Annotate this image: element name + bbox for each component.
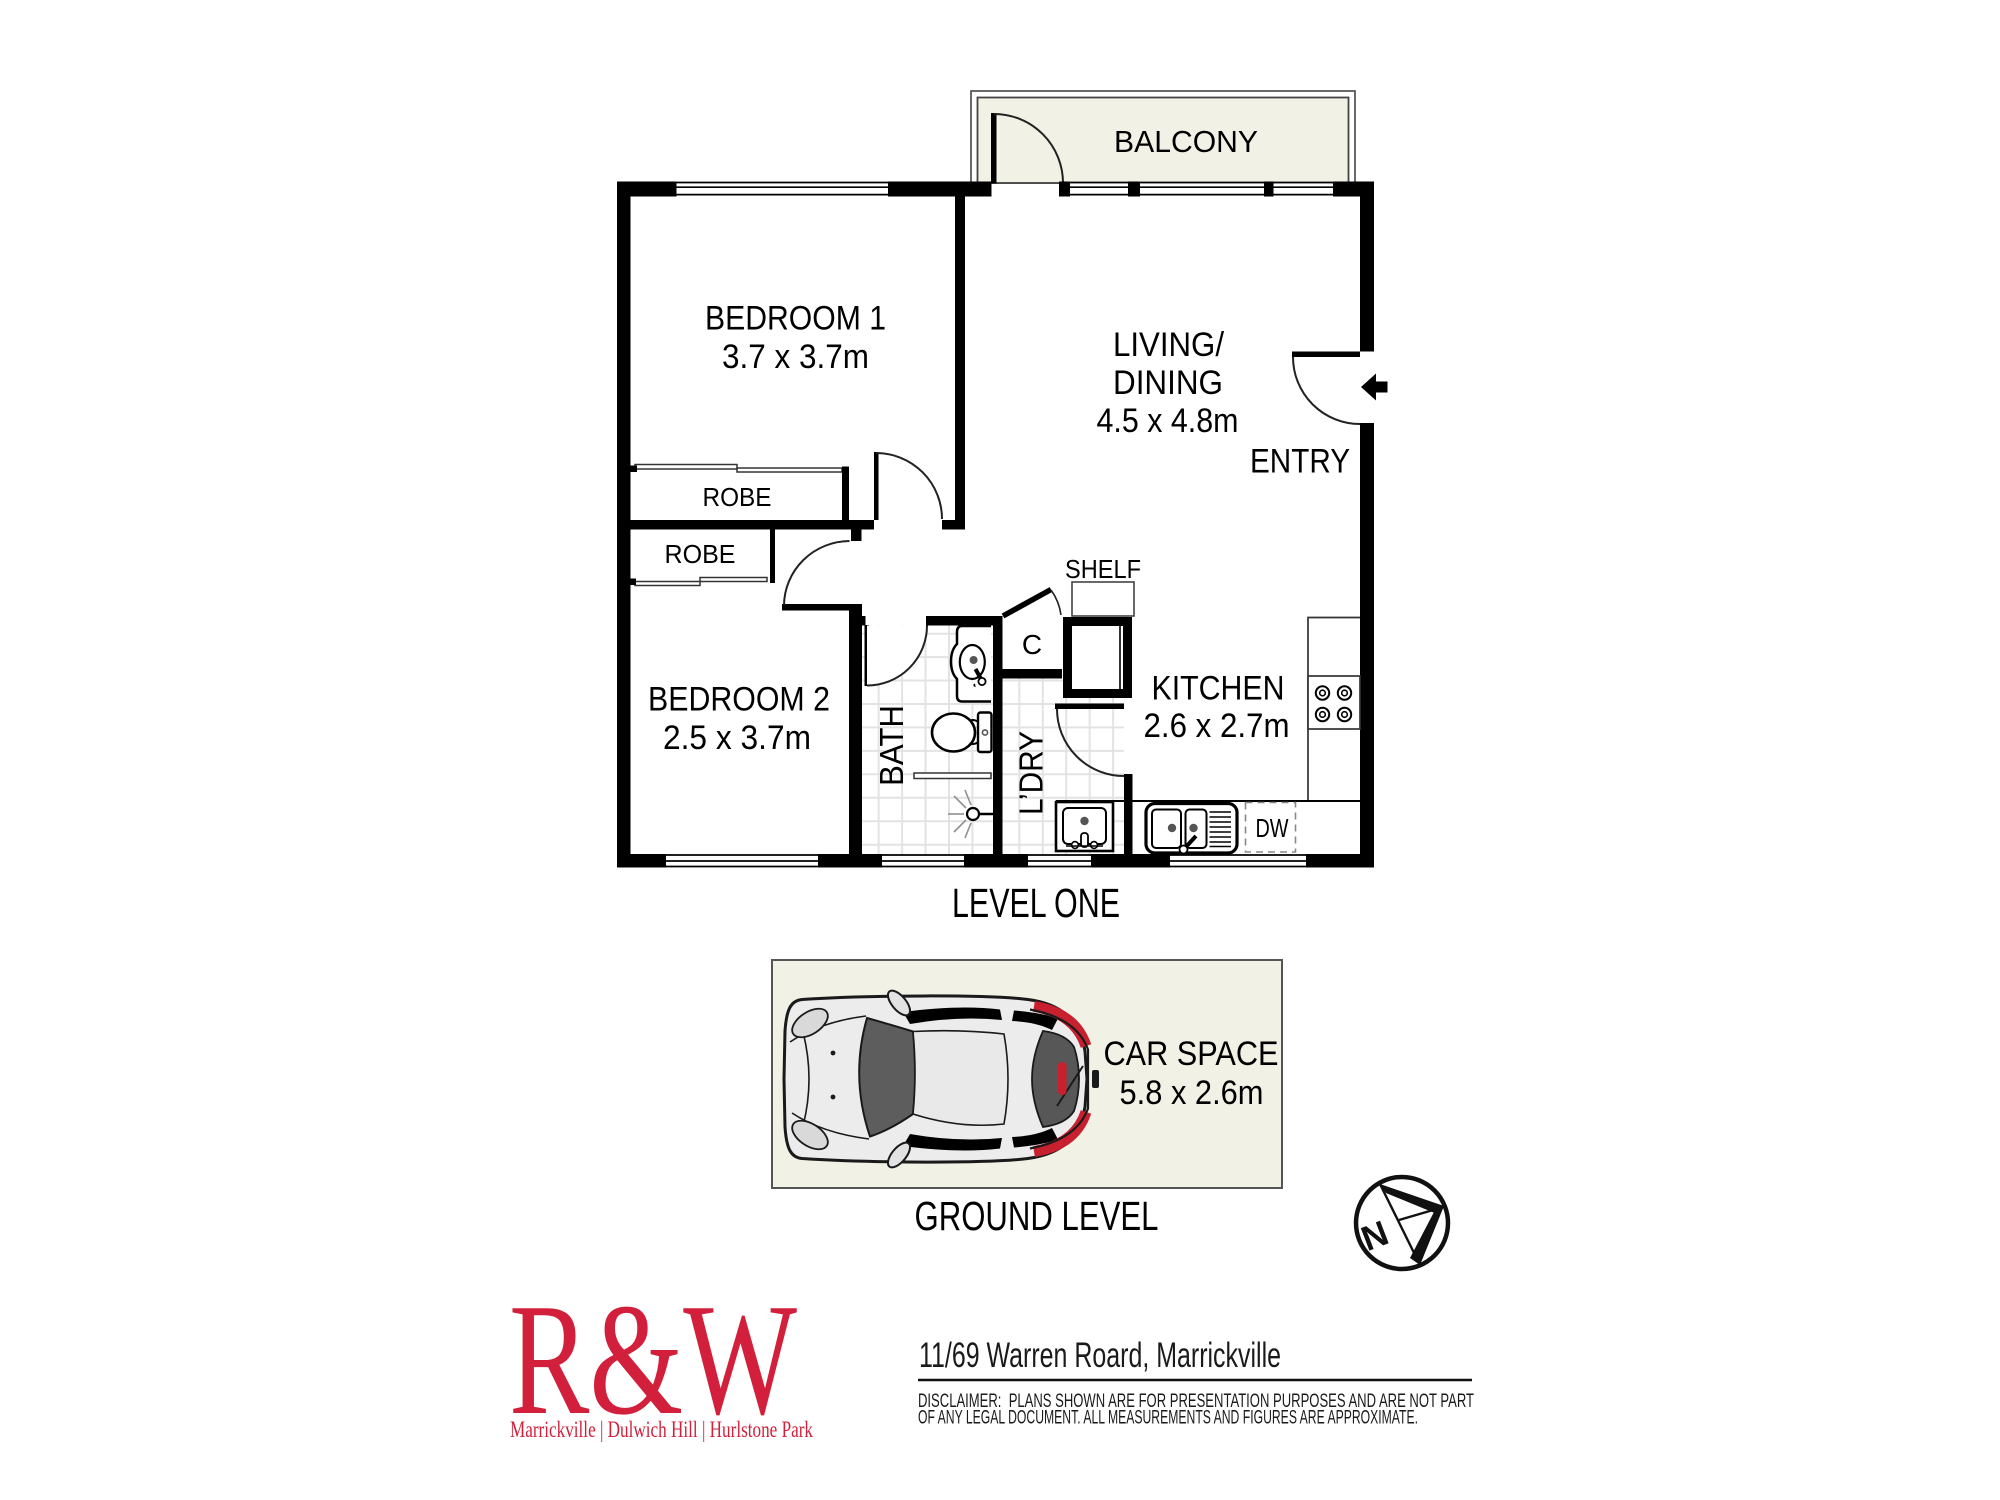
svg-text:BALCONY: BALCONY bbox=[1114, 124, 1258, 159]
svg-text:ENTRY: ENTRY bbox=[1250, 443, 1350, 481]
svg-text:5.8 x 2.6m: 5.8 x 2.6m bbox=[1120, 1074, 1264, 1112]
svg-text:2.6 x 2.7m: 2.6 x 2.7m bbox=[1144, 707, 1290, 745]
svg-text:CAR SPACE: CAR SPACE bbox=[1104, 1035, 1279, 1073]
svg-text:Marrickville | Dulwich Hill |: Marrickville | Dulwich Hill | Hurlstone … bbox=[510, 1417, 813, 1442]
svg-text:L’DRY: L’DRY bbox=[1013, 731, 1050, 815]
svg-text:DINING: DINING bbox=[1113, 364, 1223, 402]
svg-text:OF ANY LEGAL DOCUMENT. ALL MEA: OF ANY LEGAL DOCUMENT. ALL MEASUREMENTS … bbox=[918, 1408, 1418, 1429]
svg-text:2.5 x 3.7m: 2.5 x 3.7m bbox=[663, 719, 811, 757]
svg-text:3.7 x 3.7m: 3.7 x 3.7m bbox=[722, 338, 869, 376]
svg-text:BATH: BATH bbox=[873, 705, 910, 786]
svg-text:LEVEL ONE: LEVEL ONE bbox=[952, 880, 1120, 926]
svg-text:4.5 x 4.8m: 4.5 x 4.8m bbox=[1097, 402, 1239, 440]
svg-text:ROBE: ROBE bbox=[703, 482, 772, 512]
svg-text:11/69 Warren Roard, Marrickvil: 11/69 Warren Roard, Marrickville bbox=[919, 1336, 1281, 1375]
svg-text:DW: DW bbox=[1256, 813, 1289, 843]
svg-text:LIVING/: LIVING/ bbox=[1113, 326, 1224, 364]
svg-text:C: C bbox=[1022, 629, 1042, 660]
svg-text:BEDROOM 2: BEDROOM 2 bbox=[648, 681, 830, 719]
svg-text:BEDROOM 1: BEDROOM 1 bbox=[705, 300, 886, 338]
svg-text:ROBE: ROBE bbox=[665, 539, 736, 569]
svg-text:KITCHEN: KITCHEN bbox=[1152, 670, 1285, 708]
svg-text:GROUND LEVEL: GROUND LEVEL bbox=[915, 1193, 1159, 1239]
svg-text:SHELF: SHELF bbox=[1065, 554, 1141, 584]
